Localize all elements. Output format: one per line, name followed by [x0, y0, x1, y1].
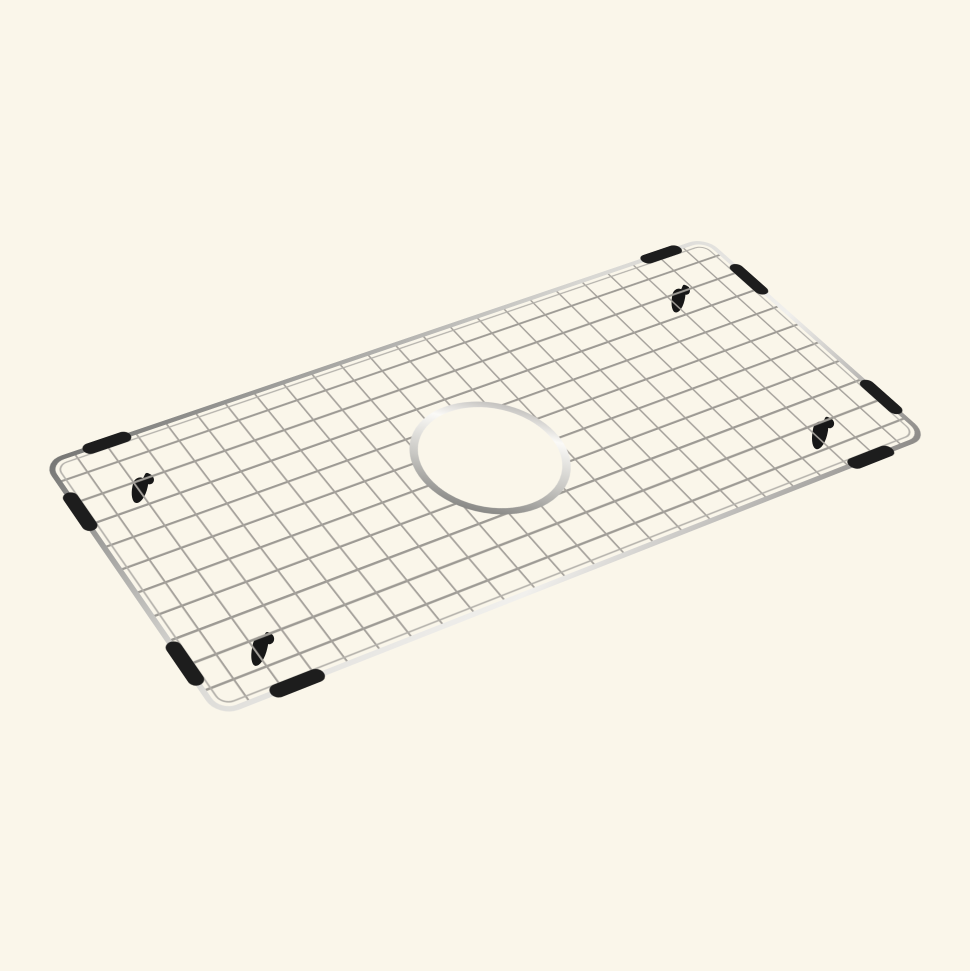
cross-wire — [254, 394, 442, 625]
cross-wire — [225, 403, 411, 637]
product-image — [0, 0, 970, 971]
